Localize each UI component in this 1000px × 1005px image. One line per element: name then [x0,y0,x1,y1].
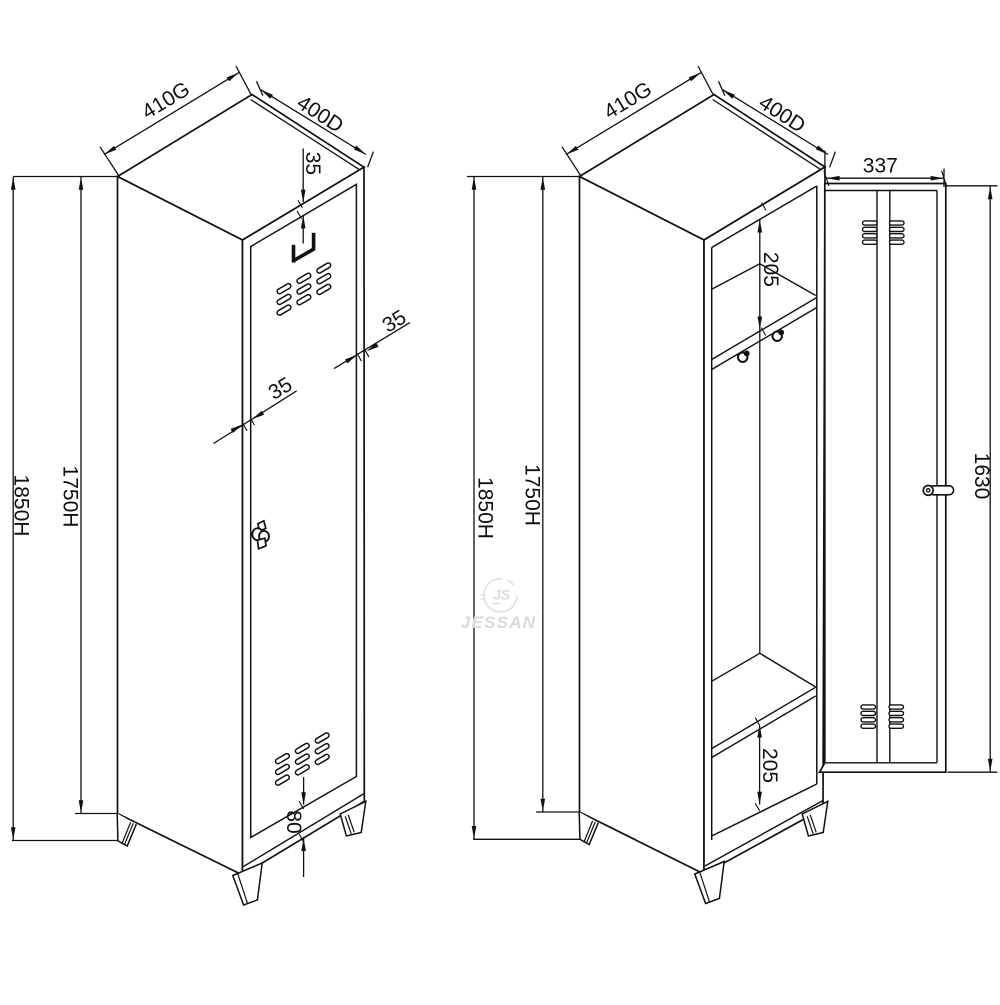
svg-text:1850H: 1850H [9,475,32,537]
svg-text:JESSAN: JESSAN [461,613,536,632]
svg-text:1850H: 1850H [473,477,496,539]
svg-text:205: 205 [758,748,781,783]
svg-text:80: 80 [282,810,305,833]
svg-text:1750H: 1750H [520,464,543,526]
svg-text:337: 337 [863,154,898,177]
svg-text:205: 205 [759,252,782,287]
svg-text:1750H: 1750H [58,466,81,528]
svg-text:35: 35 [301,152,324,175]
svg-text:1630: 1630 [970,453,993,500]
svg-text:’: ’ [536,611,538,622]
svg-text:JS: JS [493,587,511,603]
